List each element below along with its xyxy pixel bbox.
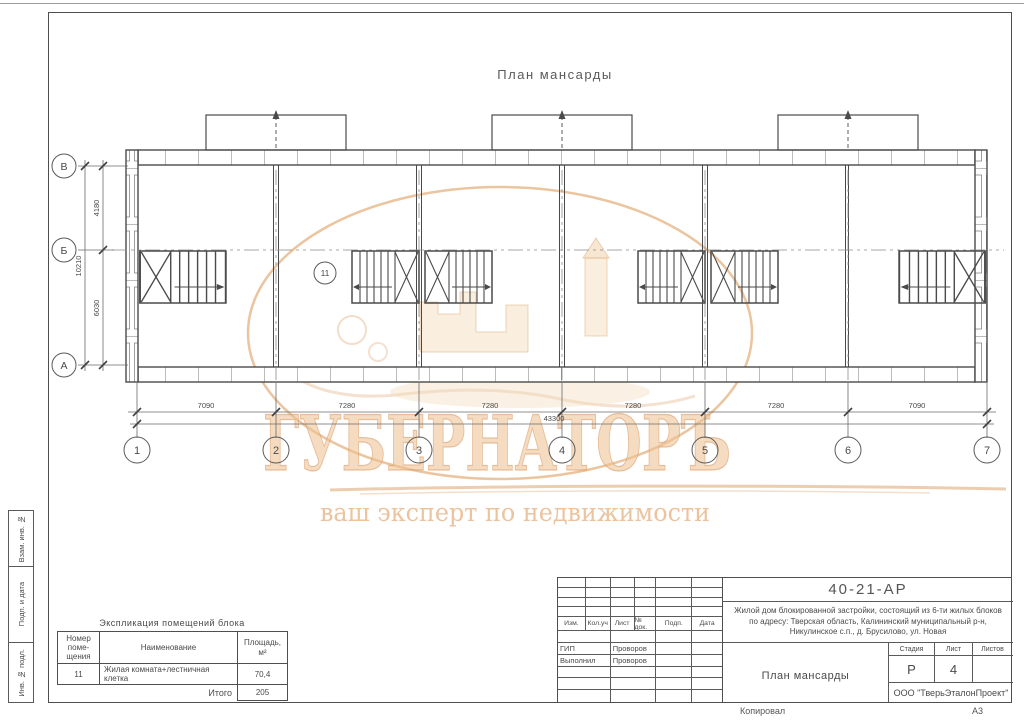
dimensions-bottom <box>128 383 996 438</box>
title-block: Изм. Кол.уч Лист № док. Подп. Дата ГИП П… <box>557 577 1012 703</box>
description-line-1: Жилой дом блокированной застройки, состо… <box>734 606 1002 616</box>
col-izm: Изм. <box>558 617 586 630</box>
svg-text:7090: 7090 <box>909 401 926 410</box>
explication-total-label: Итого <box>58 685 238 701</box>
svg-text:6: 6 <box>845 445 851 457</box>
explication-col-number: Номер поме- щения <box>58 632 100 664</box>
stage-label: Стадия <box>889 643 935 655</box>
drawing-name: План мансарды <box>723 643 889 702</box>
side-stamp-podp: Подп. и дата <box>17 582 26 626</box>
svg-text:7090: 7090 <box>198 401 215 410</box>
svg-text:7: 7 <box>984 445 990 457</box>
svg-text:6030: 6030 <box>92 300 101 317</box>
svg-text:3: 3 <box>416 445 422 457</box>
doc-number: 40-21-АР <box>723 578 1013 602</box>
explication-total-value: 205 <box>238 685 288 701</box>
col-list: Лист <box>611 617 635 630</box>
explication-room-area: 70,4 <box>238 664 288 685</box>
copied-label: Копировал <box>740 706 785 716</box>
svg-text:А: А <box>60 360 67 372</box>
dimension-labels-left: 4180 6030 10210 <box>74 200 101 317</box>
plan-walls <box>126 150 987 382</box>
drawing-sheet: { "sheet": { "top_title": "План мансарды… <box>0 0 1024 724</box>
col-dok: № док. <box>635 617 657 630</box>
svg-text:2: 2 <box>273 445 279 457</box>
svg-text:5: 5 <box>702 445 708 457</box>
explication-room-name: Жилая комната+лестничная клетка <box>100 664 238 685</box>
sheets-label: Листов <box>973 643 1012 655</box>
svg-text:7280: 7280 <box>768 401 785 410</box>
title-block-main: 40-21-АР Жилой дом блокированной застрой… <box>723 578 1013 702</box>
side-stamp-inv: Инв. № подл. <box>17 649 26 697</box>
name-author: Проворов <box>611 655 657 666</box>
role-gip: ГИП <box>558 643 611 654</box>
format-label: А3 <box>972 706 983 716</box>
description-line-3: Никулинское с.п., д. Брусилово, ул. Нова… <box>790 627 947 637</box>
svg-text:В: В <box>60 161 67 173</box>
explication-col-area: Площадь, м² <box>238 632 288 664</box>
explication-table: Экспликация помещений блока Номер поме- … <box>57 618 287 701</box>
role-author: Выполнил <box>558 655 611 666</box>
dormers <box>206 110 918 150</box>
col-koluch: Кол.уч <box>586 617 611 630</box>
sheets-value <box>973 656 1012 682</box>
sheet-value: 4 <box>935 656 973 682</box>
room-marker: 11 <box>314 262 336 284</box>
dim-total-bottom: 43300 <box>544 414 565 423</box>
explication-col-name: Наименование <box>100 632 238 664</box>
axis-centerlines <box>112 170 1004 380</box>
project-description: Жилой дом блокированной застройки, состо… <box>723 602 1013 643</box>
svg-text:Б: Б <box>61 245 68 257</box>
company-name: ООО "ТверьЭталонПроект" <box>889 683 1013 702</box>
explication-room-number: 11 <box>58 664 100 685</box>
axis-markers-left: В Б А <box>52 154 76 377</box>
svg-text:7280: 7280 <box>339 401 356 410</box>
stage-sheet-block: Стадия Лист Листов Р 4 ООО "ТверьЭталонП… <box>889 643 1013 702</box>
svg-text:4180: 4180 <box>92 200 101 217</box>
svg-text:7280: 7280 <box>625 401 642 410</box>
watermark-tagline: ваш эксперт по недвижимости <box>320 498 710 527</box>
room-label: 11 <box>321 268 330 278</box>
dim-total-left: 10210 <box>74 256 83 277</box>
svg-text:1: 1 <box>134 445 140 457</box>
title-block-revision-grid: Изм. Кол.уч Лист № док. Подп. Дата ГИП П… <box>558 578 723 702</box>
watermark: ГУБЕРНАТОРЪ ваш эксперт по недвижимости <box>248 187 1006 527</box>
svg-text:7280: 7280 <box>482 401 499 410</box>
side-stamp: Взам. инв. № Подп. и дата Инв. № подл. <box>8 510 34 703</box>
sheet-label: Лист <box>935 643 973 655</box>
svg-text:4: 4 <box>559 445 565 457</box>
dimensions-left <box>78 160 128 371</box>
stage-value: Р <box>889 656 935 682</box>
col-podp: Подп. <box>656 617 692 630</box>
side-stamp-vzam: Взам. инв. № <box>17 515 26 562</box>
col-data: Дата <box>692 617 722 630</box>
description-line-2: по адресу: Тверская область, Калининский… <box>749 617 987 627</box>
explication-title: Экспликация помещений блока <box>57 618 287 628</box>
name-gip: Проворов <box>611 643 657 654</box>
